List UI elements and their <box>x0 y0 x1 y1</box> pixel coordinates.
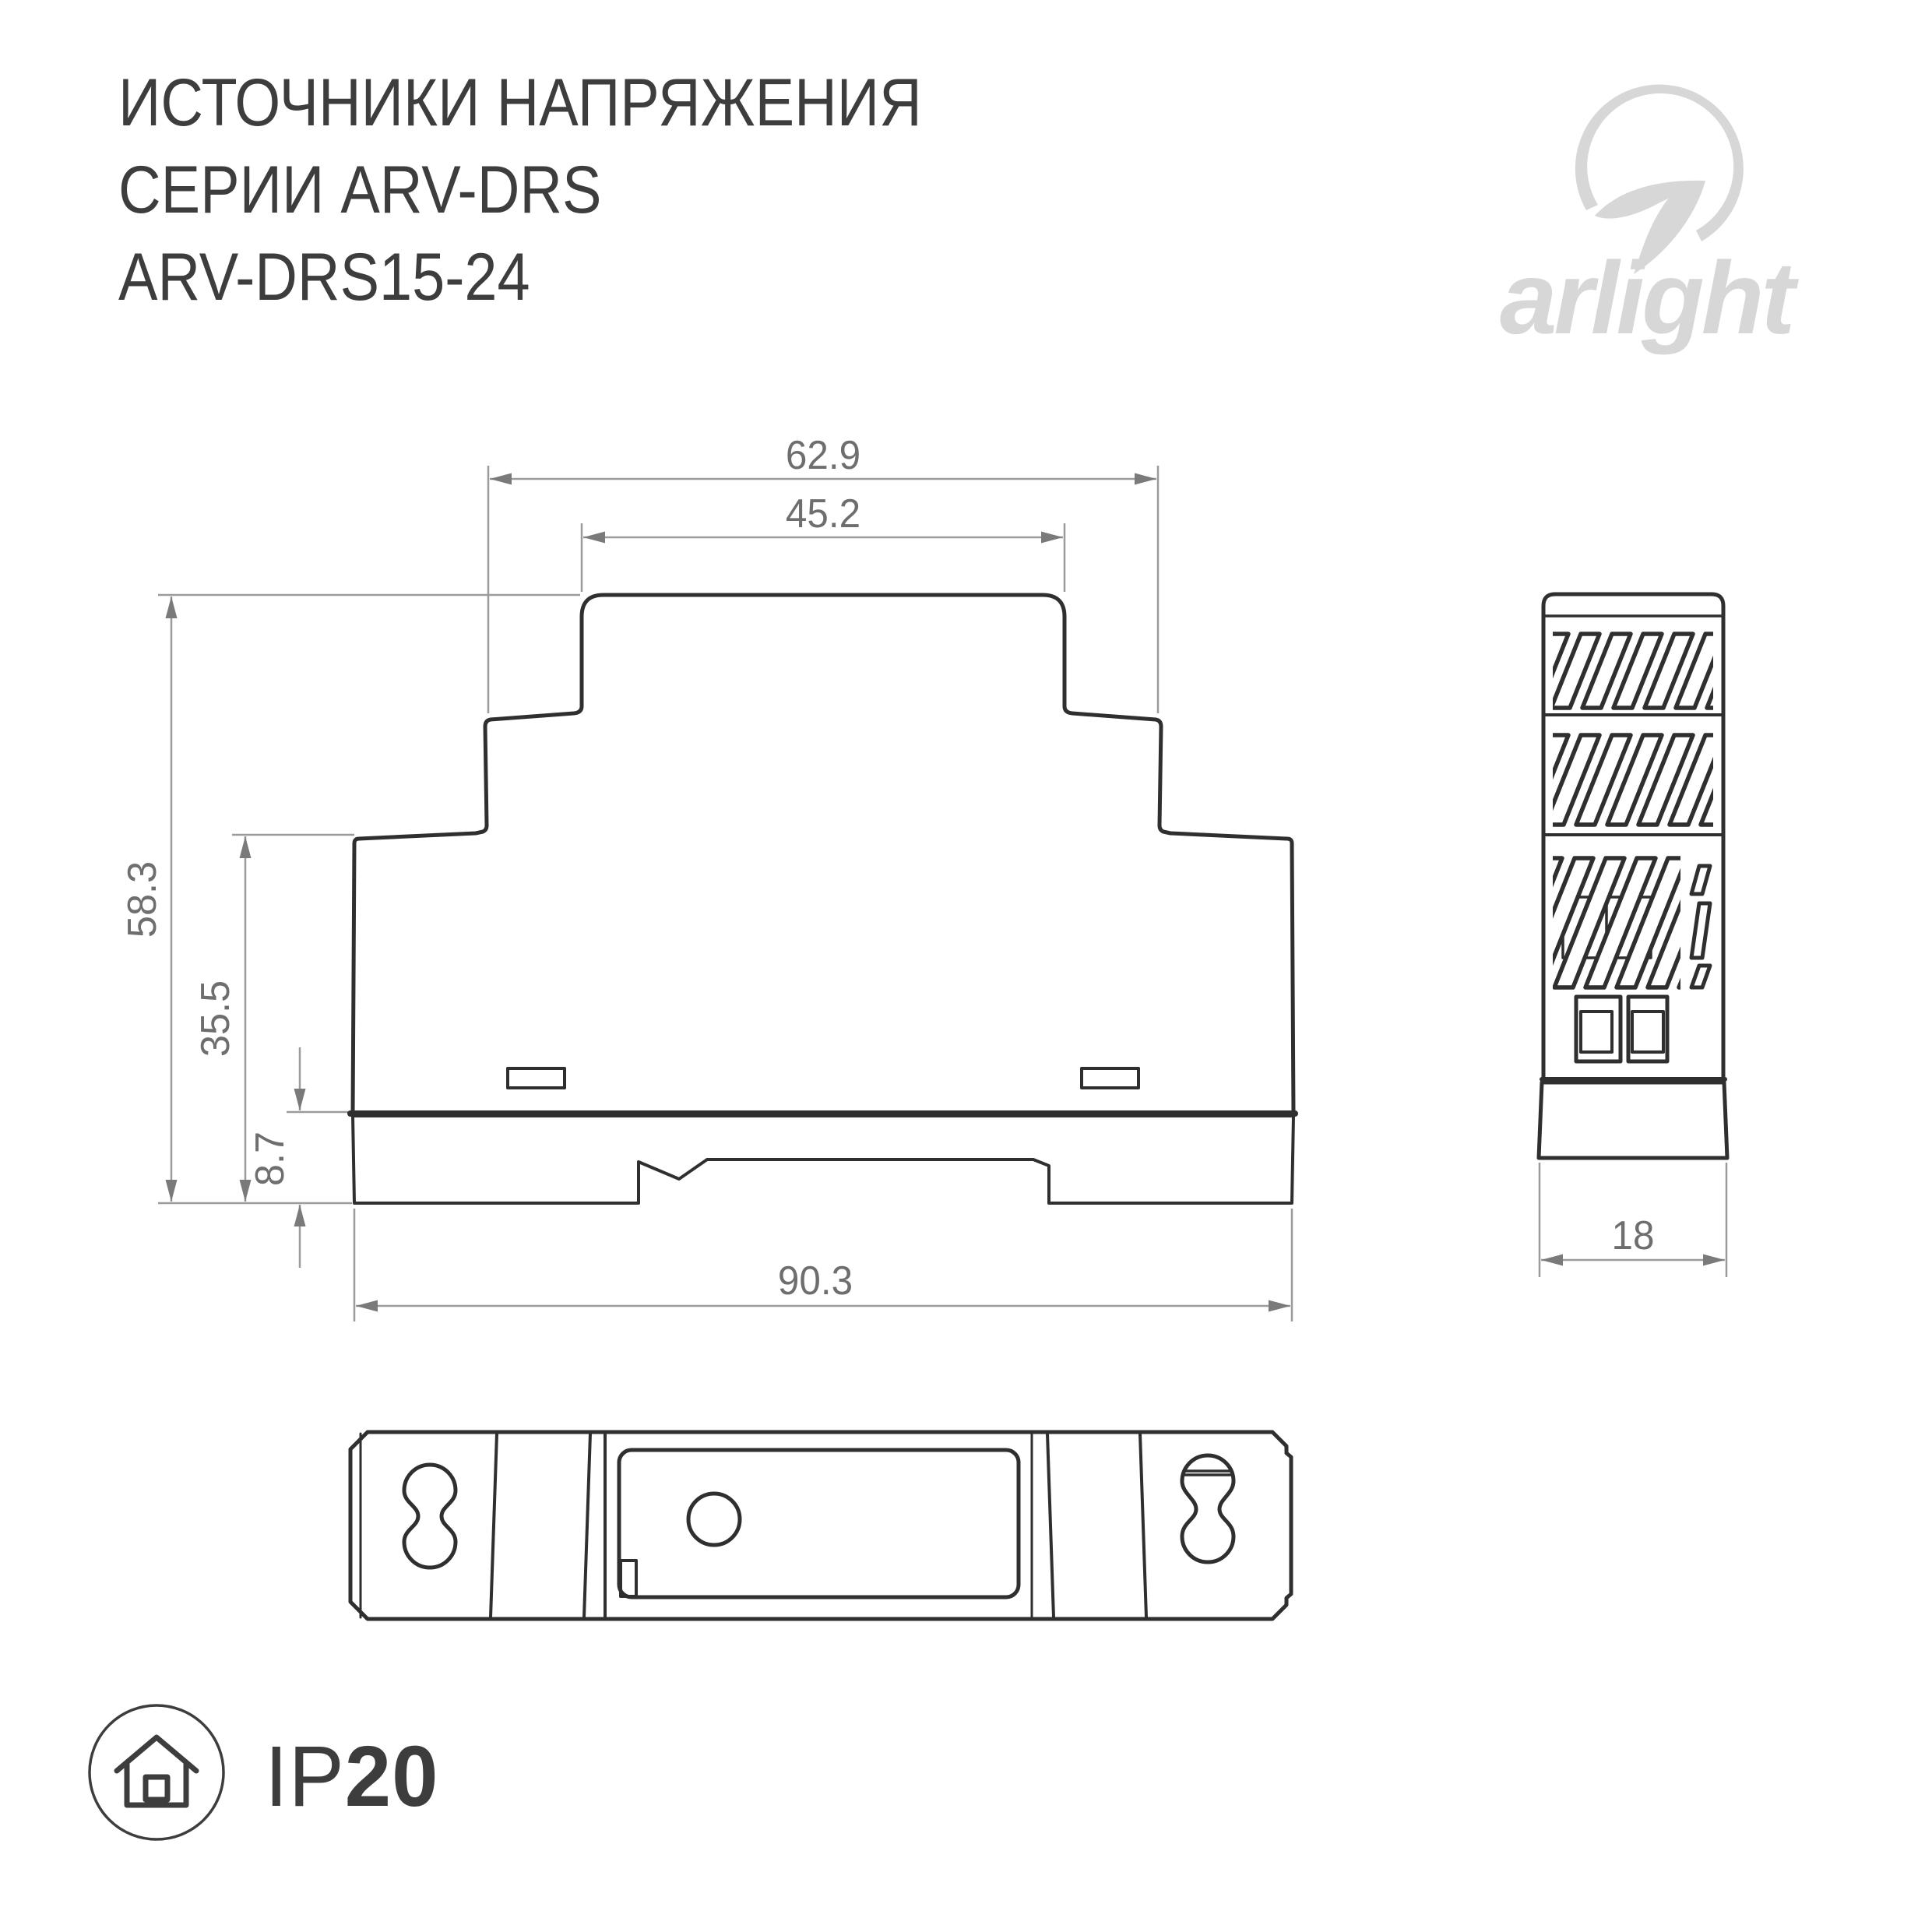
vent-slat <box>1492 858 1562 987</box>
dim-front-din-height-label: 8.7 <box>247 1131 294 1186</box>
title-line-2: СЕРИИ ARV-DRS <box>118 146 922 234</box>
dim-front-cap-width-label: 45.2 <box>786 491 860 537</box>
title-line-3: ARV-DRS15-24 <box>118 234 922 321</box>
dim-front-step-width-label: 62.9 <box>786 432 860 479</box>
page-title: ИСТОЧНИКИ НАПРЯЖЕНИЯ СЕРИИ ARV-DRS ARV-D… <box>118 59 922 321</box>
front-terminal-slot-right <box>1082 1068 1138 1088</box>
dimension-arrowhead <box>1703 1255 1725 1266</box>
dimension-arrowhead <box>583 532 605 544</box>
arlight-logo-mark-icon: arlight <box>1500 85 1799 355</box>
dimension-arrowhead <box>1269 1300 1290 1312</box>
ip-rating: IP20 <box>265 1727 438 1826</box>
front-din-plate <box>353 1116 1293 1203</box>
bottom-label-panel <box>619 1450 1019 1597</box>
vent-slat <box>1679 858 1749 987</box>
dimension-arrowhead <box>294 1089 306 1110</box>
vent-slat <box>1707 634 1755 708</box>
dimension-arrowhead <box>356 1300 378 1312</box>
dimension-arrowhead <box>240 836 252 858</box>
title-line-1: ИСТОЧНИКИ НАПРЯЖЕНИЯ <box>118 59 922 146</box>
ip-rating-prefix: IP <box>265 1729 345 1825</box>
front-case-outline <box>353 595 1293 1113</box>
house-icon <box>90 1705 223 1839</box>
dimension-arrowhead <box>1041 532 1063 544</box>
front-view-drawing <box>350 595 1295 1203</box>
dim-front-body-height-label: 35.5 <box>192 980 239 1057</box>
dimension-arrowhead <box>166 596 178 618</box>
dim-front-total-width-label: 90.3 <box>778 1258 853 1304</box>
side-din-plate <box>1539 1082 1727 1158</box>
dimension-arrowhead <box>294 1205 306 1226</box>
side-view-drawing <box>1492 594 1755 1158</box>
dimension-arrowhead <box>490 473 512 485</box>
dimension-arrowhead <box>166 1180 178 1202</box>
logo-wordmark: arlight <box>1500 241 1799 355</box>
bottom-view-drawing <box>350 1432 1291 1619</box>
ip-rating-value: 20 <box>345 1729 439 1825</box>
front-terminal-slot-left <box>508 1068 565 1088</box>
dimension-arrowhead <box>1541 1255 1563 1266</box>
dim-side-width-label: 18 <box>1612 1212 1655 1259</box>
datasheet-page: arlight ИСТОЧНИКИ НАПРЯЖЕНИЯ СЕРИИ ARV-D… <box>0 0 1932 1932</box>
dim-front-total-height-label: 58.3 <box>119 861 166 938</box>
dimension-arrowhead <box>1135 473 1156 485</box>
